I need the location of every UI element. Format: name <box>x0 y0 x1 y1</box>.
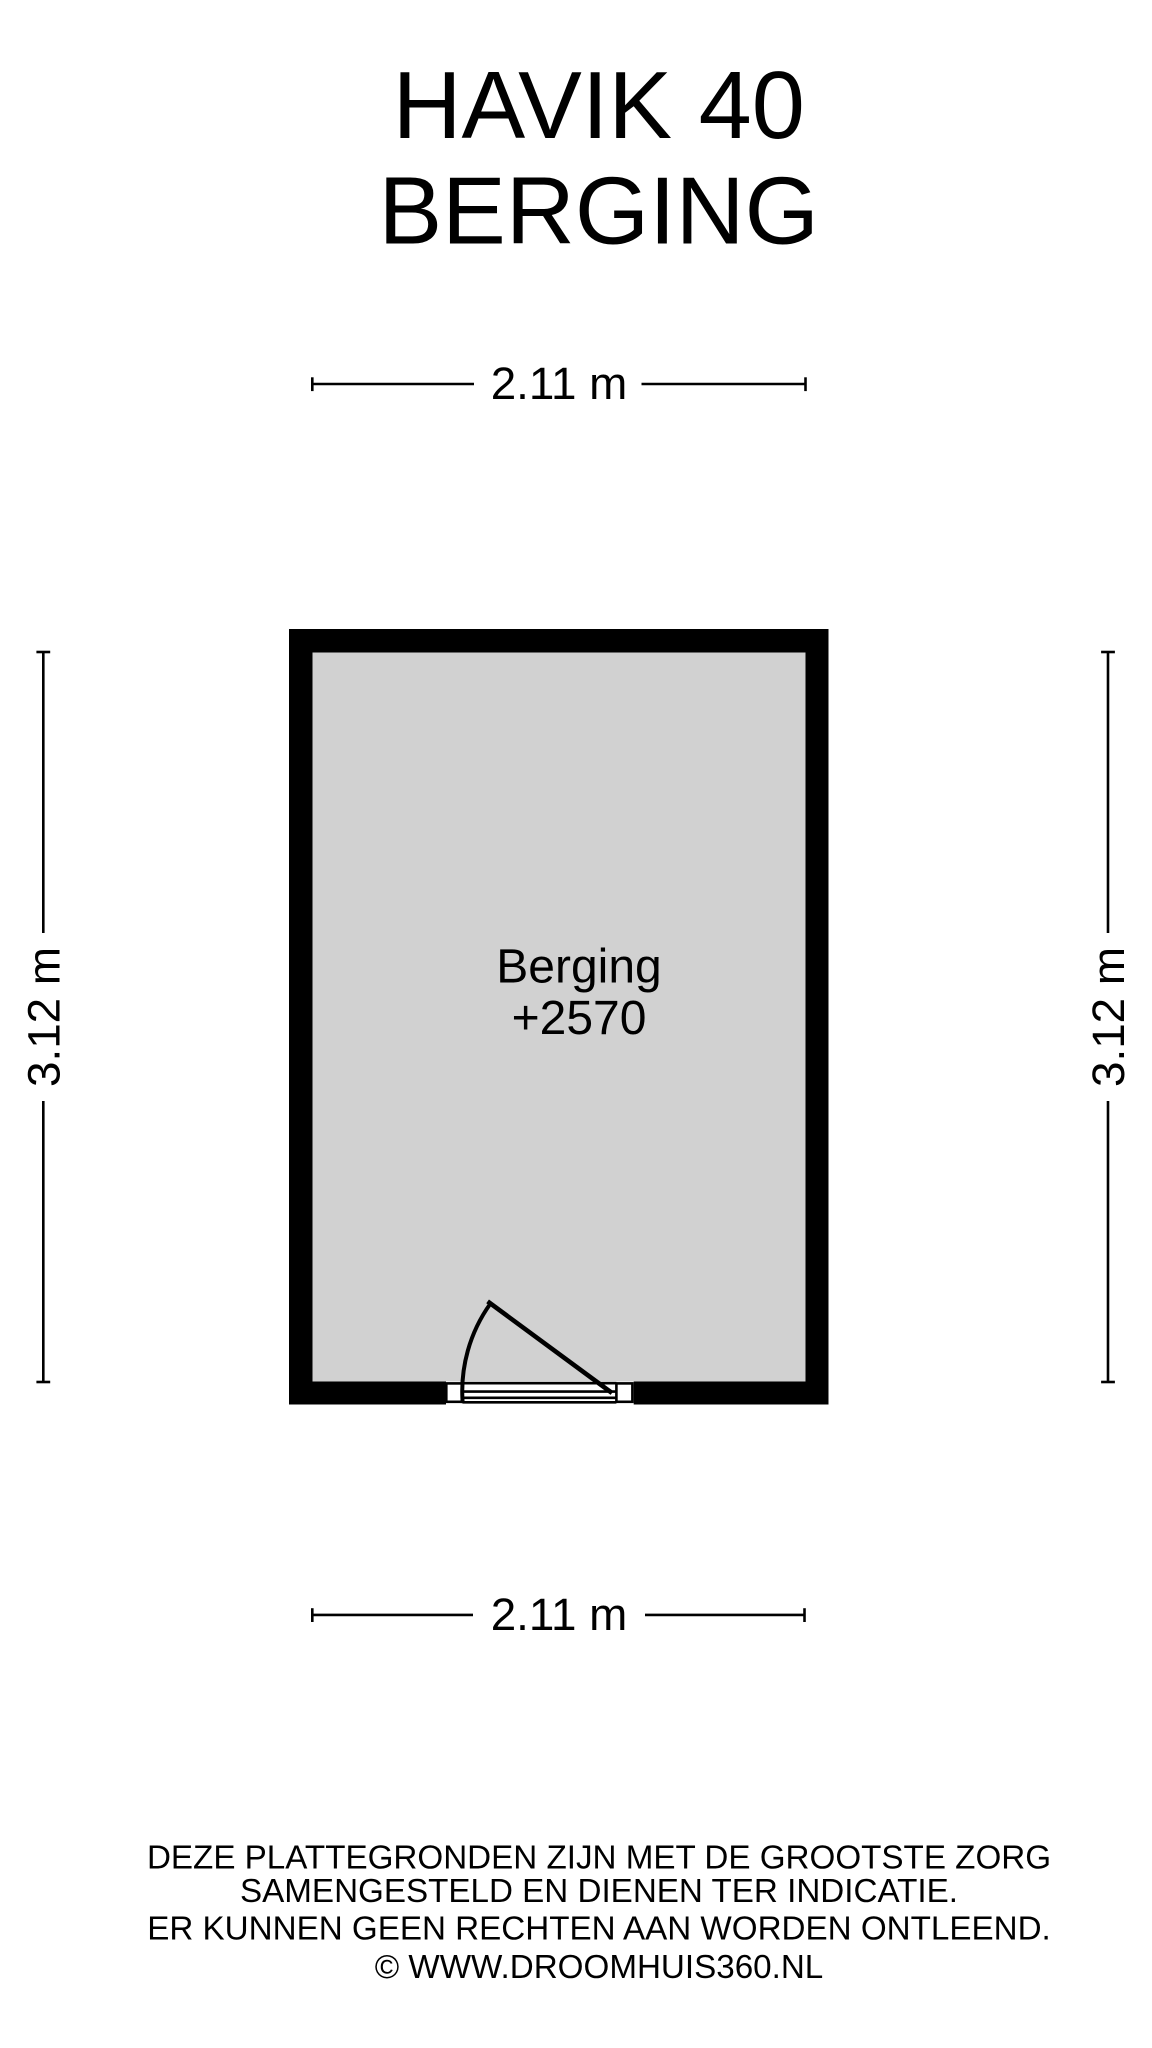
svg-text:3.12 m: 3.12 m <box>1083 947 1134 1087</box>
svg-text:3.12 m: 3.12 m <box>18 947 69 1087</box>
svg-text:Berging: Berging <box>496 941 661 994</box>
svg-text:© WWW.DROOMHUIS360.NL: © WWW.DROOMHUIS360.NL <box>375 1949 824 1986</box>
svg-text:+2570: +2570 <box>512 992 647 1045</box>
svg-text:HAVIK 40: HAVIK 40 <box>393 53 805 159</box>
svg-text:SAMENGESTELD EN DIENEN TER IND: SAMENGESTELD EN DIENEN TER INDICATIE. <box>240 1873 958 1910</box>
svg-text:DEZE PLATTEGRONDEN ZIJN MET DE: DEZE PLATTEGRONDEN ZIJN MET DE GROOTSTE … <box>147 1839 1051 1876</box>
svg-text:2.11 m: 2.11 m <box>491 1589 628 1640</box>
svg-text:2.11 m: 2.11 m <box>491 358 628 409</box>
svg-text:ER KUNNEN GEEN RECHTEN AAN WOR: ER KUNNEN GEEN RECHTEN AAN WORDEN ONTLEE… <box>147 1911 1051 1948</box>
svg-text:BERGING: BERGING <box>378 158 818 264</box>
